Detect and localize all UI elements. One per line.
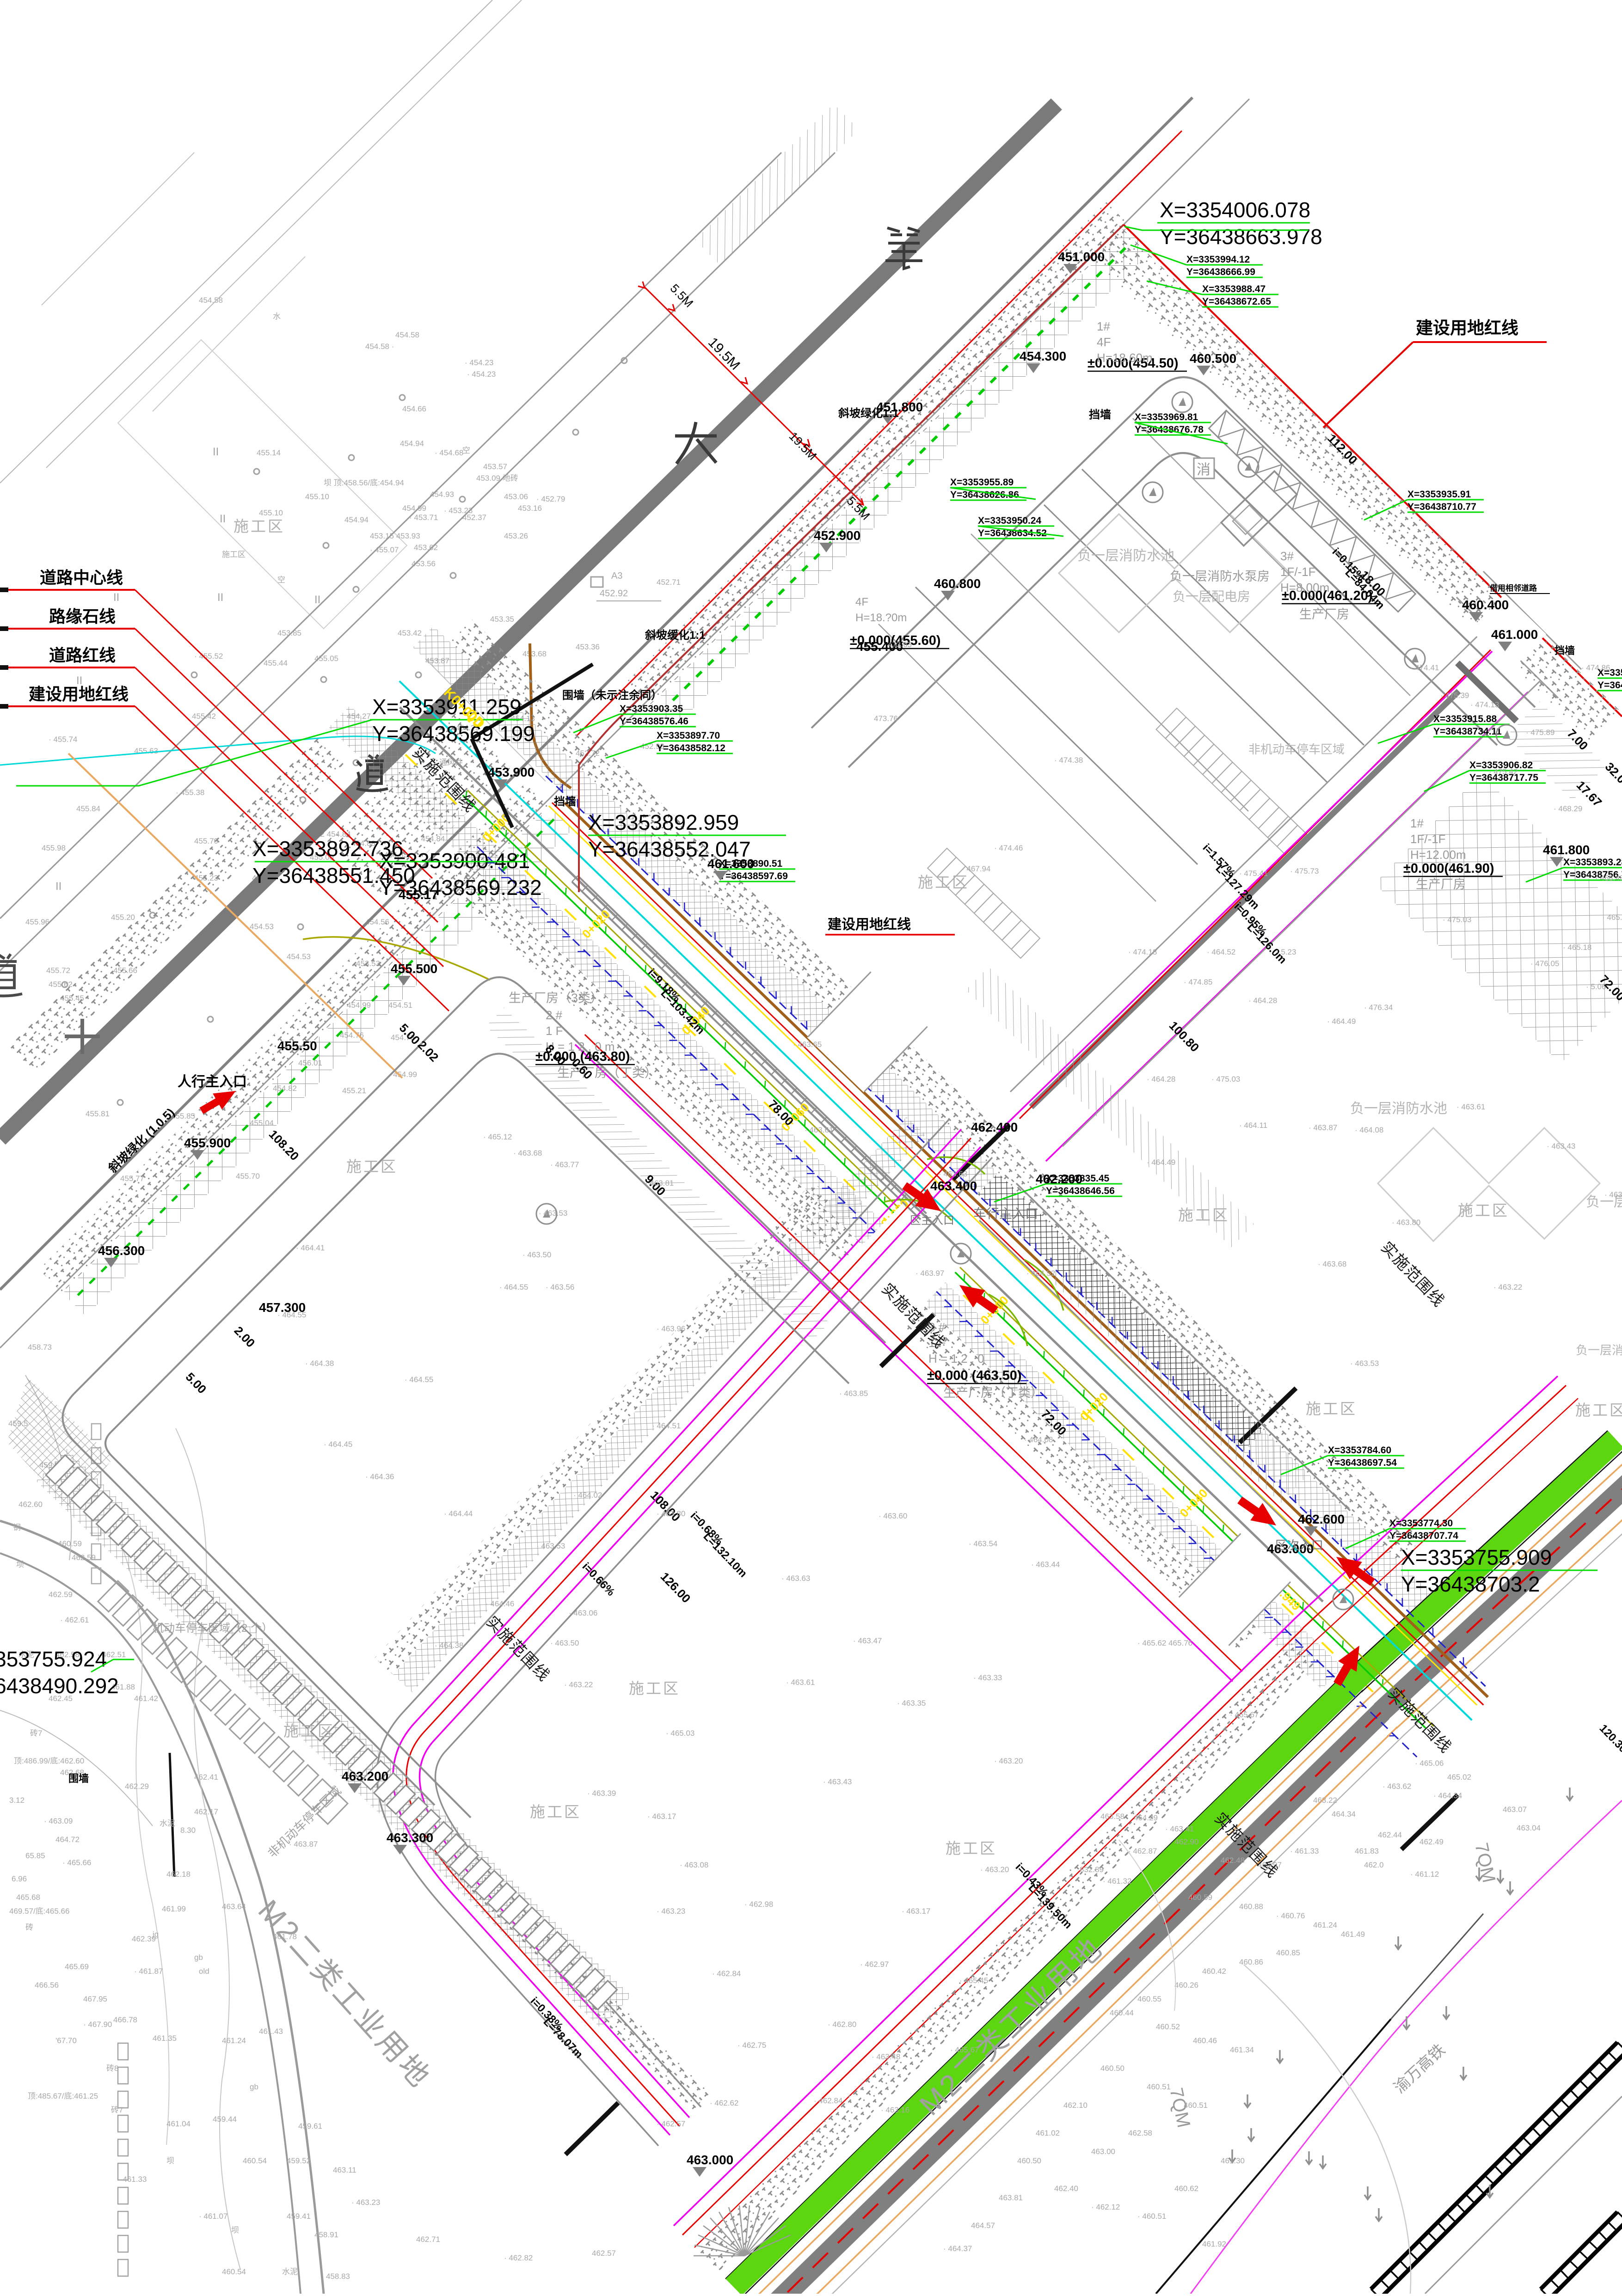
svg-text:gb: gb	[250, 2082, 258, 2091]
svg-text:坝: 坝	[231, 2226, 239, 2235]
svg-text:453.36: 453.36	[576, 643, 600, 651]
svg-text:· 463.50: · 463.50	[550, 1639, 579, 1647]
svg-text:· 463.96: · 463.96	[657, 1324, 685, 1333]
svg-text:顶:485.67/底:461.25: 顶:485.67/底:461.25	[28, 2092, 98, 2100]
svg-text:455.900: 455.900	[184, 1136, 231, 1150]
svg-text:负一层消防水池: 负一层消防水池	[1077, 548, 1174, 563]
svg-text:456.300: 456.300	[98, 1243, 145, 1258]
svg-text:· 5.06: · 5.06	[1586, 982, 1606, 991]
svg-text:· 465.67: · 465.67	[950, 2045, 979, 2054]
svg-text:X=3353784.60: X=3353784.60	[1328, 1445, 1391, 1456]
svg-text:· 463.2: · 463.2	[1604, 1190, 1622, 1199]
svg-text:· 464.34: · 464.34	[1433, 1791, 1462, 1800]
svg-text:道路中心线: 道路中心线	[40, 568, 123, 587]
svg-text:· 463.68: · 463.68	[1318, 1260, 1346, 1268]
svg-text:X=3353969.81: X=3353969.81	[1135, 412, 1198, 422]
svg-text:· 462.87: · 462.87	[1128, 1847, 1157, 1855]
svg-text:· 463.61: · 463.61	[805, 1126, 833, 1134]
svg-text:· 462.90: · 462.90	[1170, 1837, 1198, 1846]
svg-text:3#: 3#	[1280, 549, 1294, 563]
svg-text:生产厂房: 生产厂房	[1299, 607, 1349, 621]
svg-text:· 462.84: · 462.84	[712, 1969, 741, 1978]
svg-text:· 463.33: · 463.33	[973, 1673, 1002, 1682]
svg-text:460.54: 460.54	[222, 2267, 246, 2276]
svg-text:· 474.85: · 474.85	[1184, 978, 1212, 986]
svg-text:4F: 4F	[1097, 335, 1111, 349]
svg-text:· 461.33: · 461.33	[118, 2175, 147, 2184]
svg-text:455.20: 455.20	[111, 913, 135, 922]
svg-text:· 463.61: · 463.61	[786, 1678, 815, 1687]
svg-text:· 460.51: · 460.51	[1137, 2212, 1166, 2221]
svg-text:460.50: 460.50	[1100, 2064, 1124, 2073]
svg-text:· 467.94: · 467.94	[962, 864, 990, 873]
svg-text:463.58: 463.58	[1100, 1812, 1124, 1821]
svg-text:465.02: 465.02	[1447, 1773, 1471, 1782]
svg-text:Y=36438666.99: Y=36438666.99	[1186, 267, 1255, 277]
svg-text:· 463.17: · 463.17	[647, 1812, 676, 1821]
svg-text:· 463.44: · 463.44	[1031, 1560, 1060, 1569]
svg-text:Y=36438597.69: Y=36438597.69	[719, 871, 788, 882]
svg-text:462.29: 462.29	[125, 1782, 149, 1791]
svg-text:· 464.38: · 464.38	[305, 1359, 334, 1368]
svg-text:455.44: 455.44	[264, 659, 288, 667]
svg-text:454.66: 454.66	[402, 404, 426, 413]
svg-text:施工区: 施工区	[346, 1158, 398, 1175]
svg-text:453.35: 453.35	[490, 615, 514, 624]
svg-text:生产厂房（丁类）: 生产厂房（丁类）	[943, 1386, 1043, 1400]
svg-text:460.62: 460.62	[1174, 2184, 1198, 2193]
svg-text:464.72: 464.72	[55, 1835, 80, 1844]
svg-text:473.76: 473.76	[874, 714, 898, 723]
svg-text:· 463.81: · 463.81	[645, 1179, 674, 1188]
svg-text:· 463.53: · 463.53	[1350, 1359, 1379, 1368]
svg-text:空: 空	[277, 576, 285, 584]
svg-text:· 465.06: · 465.06	[1415, 1759, 1444, 1768]
svg-text:II: II	[55, 880, 61, 893]
svg-text:460.26: 460.26	[1174, 1981, 1198, 1990]
svg-text:施工区: 施工区	[1306, 1400, 1357, 1417]
svg-text:· 468.29: · 468.29	[1554, 804, 1582, 813]
svg-text:469.57/底:465.66: 469.57/底:465.66	[9, 1907, 69, 1916]
svg-text:X=3353774.30: X=3353774.30	[1389, 1518, 1453, 1529]
svg-text:· 464.36: · 464.36	[365, 1472, 394, 1481]
svg-text:X=3353900.481: X=3353900.481	[379, 849, 530, 873]
svg-text:砖7: 砖7	[111, 2106, 123, 2114]
svg-text:· 476.05: · 476.05	[1530, 959, 1559, 968]
svg-text:461.30: 461.30	[1221, 2156, 1245, 2165]
svg-text:水泥: 水泥	[160, 1819, 175, 1828]
svg-text:460.44: 460.44	[1110, 2008, 1134, 2017]
svg-text:挡墙: 挡墙	[554, 795, 576, 808]
svg-text:施工区: 施工区	[629, 1680, 680, 1697]
svg-text:H=8.00m: H=8.00m	[1280, 581, 1329, 594]
svg-text:463.300: 463.300	[387, 1831, 433, 1845]
svg-text:462.200: 462.200	[1036, 1172, 1082, 1186]
svg-text:· 463.60: · 463.60	[879, 1512, 907, 1520]
svg-text:1 F: 1 F	[546, 1024, 563, 1038]
svg-text:施工区: 施工区	[233, 518, 285, 535]
svg-text:Y=36438569.199: Y=36438569.199	[372, 722, 535, 746]
svg-text:453.09 地砖: 453.09 地砖	[476, 474, 518, 483]
svg-text:461.92: 461.92	[1202, 2240, 1226, 2248]
svg-text:施工区: 施工区	[918, 874, 969, 891]
svg-text:Y=36438697.54: Y=36438697.54	[1328, 1457, 1397, 1468]
svg-text:· 5.23: · 5.23	[1276, 948, 1296, 956]
svg-text:顶:486.99/底:462.60: 顶:486.99/底:462.60	[14, 1757, 84, 1765]
svg-text:463.200: 463.200	[342, 1769, 388, 1783]
svg-text:455.14: 455.14	[257, 448, 281, 457]
svg-text:· 475.03: · 475.03	[1443, 915, 1471, 924]
svg-text:· 464.08: · 464.08	[1024, 1435, 1053, 1444]
svg-text:· 474.86: · 474.86	[1581, 663, 1610, 672]
svg-text:1#: 1#	[1410, 816, 1424, 830]
svg-text:· 463.97: · 463.97	[915, 1269, 944, 1278]
svg-text:462.10: 462.10	[1063, 2101, 1087, 2110]
svg-text:462.600: 462.600	[1298, 1512, 1345, 1526]
svg-text:454.99: 454.99	[402, 504, 426, 513]
svg-text:建设用地红线: 建设用地红线	[828, 917, 911, 932]
svg-text:· 461.33: · 461.33	[1290, 1847, 1319, 1855]
svg-text:455.500: 455.500	[391, 961, 437, 976]
svg-text:· 463.20: · 463.20	[994, 1757, 1023, 1765]
svg-text:461.99: 461.99	[162, 1904, 186, 1913]
svg-text:454.58 ·: 454.58 ·	[365, 342, 394, 351]
svg-text:X=3353897.70: X=3353897.70	[657, 730, 720, 741]
svg-text:461.24: 461.24	[222, 2036, 246, 2045]
svg-text:路缘石线: 路缘石线	[49, 607, 116, 626]
svg-text:X=3353892.959: X=3353892.959	[588, 810, 739, 834]
svg-text:1F/-1F: 1F/-1F	[1410, 832, 1446, 846]
svg-text:455.70: 455.70	[236, 1172, 260, 1181]
svg-text:· 475.03: · 475.03	[1211, 1075, 1240, 1084]
svg-text:461.800: 461.800	[1543, 843, 1590, 857]
svg-text:· 464.55: · 464.55	[499, 1283, 528, 1292]
svg-text:462.44: 462.44	[1378, 1831, 1402, 1839]
svg-text:施工区: 施工区	[1458, 1202, 1509, 1219]
svg-text:· 463.43: · 463.43	[823, 1777, 852, 1786]
svg-text:462.60: 462.60	[18, 1500, 43, 1509]
svg-text:455.81: 455.81	[86, 1109, 110, 1118]
svg-text:Y=36438576.46: Y=36438576.46	[620, 716, 688, 727]
svg-text:挡墙: 挡墙	[1554, 645, 1575, 656]
svg-text:建设用地红线: 建设用地红线	[1416, 318, 1518, 337]
svg-text:X=3353955.89: X=3353955.89	[950, 477, 1014, 488]
svg-text:区次入口: 区次入口	[1275, 1538, 1323, 1552]
svg-text:old: old	[199, 1967, 209, 1976]
svg-text:462.400: 462.400	[971, 1120, 1018, 1134]
svg-text:· 462.82: · 462.82	[504, 2253, 533, 2262]
svg-text:463.00: 463.00	[1091, 2147, 1115, 2156]
svg-text:· 465.66: · 465.66	[62, 1858, 91, 1867]
svg-text:· 463.53: · 463.53	[539, 1209, 567, 1218]
svg-text:· 461.07: · 461.07	[199, 2212, 227, 2221]
svg-text:· 463.41: · 463.41	[1165, 1825, 1194, 1833]
svg-text:461.24: 461.24	[1313, 1921, 1337, 1929]
svg-text:464.29: 464.29	[1134, 1813, 1158, 1822]
svg-text:453.26: 453.26	[504, 532, 528, 540]
svg-text:Y=36438582.12: Y=36438582.12	[657, 743, 725, 753]
svg-text:· 464.51: · 464.51	[652, 1421, 681, 1430]
svg-text:463.400: 463.400	[930, 1179, 977, 1193]
svg-text:· 463.16: · 463.16	[881, 2106, 909, 2114]
svg-text:454.53: 454.53	[287, 952, 311, 961]
svg-text:461.600: 461.600	[707, 857, 754, 871]
svg-text:832.89: 832.89	[1080, 1865, 1104, 1874]
svg-text:· 468.48: · 468.48	[1595, 874, 1622, 882]
svg-text:460.85: 460.85	[1276, 1948, 1300, 1957]
svg-text:· 465.18: · 465.18	[1563, 943, 1591, 952]
svg-text:±0.000 (463.50): ±0.000 (463.50)	[927, 1368, 1022, 1383]
svg-text:4F: 4F	[855, 596, 868, 608]
svg-text:· 463.63: · 463.63	[939, 1169, 967, 1178]
svg-text:466.78: 466.78	[113, 2015, 137, 2024]
svg-text:· 463.17: · 463.17	[902, 1907, 930, 1916]
svg-text:460.59: 460.59	[58, 1539, 82, 1548]
svg-text:X=3353903.35: X=3353903.35	[620, 704, 683, 714]
svg-text:2 #: 2 #	[546, 1008, 563, 1022]
svg-text:· 453.71: · 453.71	[409, 513, 438, 522]
svg-text:· 474.46: · 474.46	[994, 844, 1023, 852]
svg-text:Y=36438663.978: Y=36438663.978	[1160, 225, 1322, 249]
svg-text:· 464.49: · 464.49	[1327, 1017, 1356, 1026]
svg-text:空: 空	[462, 446, 470, 455]
svg-text:460.50: 460.50	[1017, 2156, 1041, 2165]
svg-text:1#: 1#	[1097, 319, 1110, 333]
svg-text:458.91: 458.91	[314, 2230, 338, 2239]
svg-text:II: II	[314, 594, 320, 606]
svg-text:461.35: 461.35	[153, 2034, 177, 2043]
svg-text:· 463.62: · 463.62	[1382, 1782, 1411, 1791]
svg-text:· 455.52: · 455.52	[194, 652, 223, 661]
svg-text:负一层消防水泵房: 负一层消防水泵房	[1170, 569, 1270, 583]
svg-text:H=18.?0m: H=18.?0m	[855, 612, 907, 624]
svg-text:· 464.41: · 464.41	[296, 1243, 325, 1252]
svg-text:· 463.77: · 463.77	[550, 1160, 579, 1169]
svg-text:· 463.09: · 463.09	[44, 1817, 73, 1825]
svg-text:Y=36438710.77: Y=36438710.77	[1407, 502, 1476, 512]
svg-text:462.0: 462.0	[1364, 1861, 1384, 1869]
svg-text:454.94: 454.94	[344, 515, 369, 524]
svg-text:459.41: 459.41	[287, 2212, 311, 2221]
svg-text:463.07: 463.07	[1503, 1805, 1527, 1814]
svg-text:Y=36438676.78: Y=36438676.78	[1135, 424, 1204, 435]
svg-text:负一层消: 负一层消	[1576, 1343, 1622, 1357]
svg-text:II: II	[113, 591, 119, 604]
svg-text:463.11: 463.11	[333, 2166, 356, 2174]
svg-text:· 463.63: · 463.63	[781, 1574, 810, 1583]
svg-text:· 462.61: · 462.61	[60, 1616, 89, 1624]
svg-text:· 465.29: · 465.29	[1602, 913, 1622, 922]
svg-text:· 463.56: · 463.56	[546, 1283, 574, 1292]
svg-text:X=3353994.12: X=3353994.12	[1186, 254, 1250, 265]
svg-text:462.41: 462.41	[194, 1773, 218, 1782]
svg-text:453.68: 453.68	[522, 649, 547, 658]
svg-text:· 475.73: · 475.73	[1290, 867, 1319, 876]
svg-text:· 463.53: · 463.53	[536, 1542, 565, 1550]
svg-text:生产厂房（3类）: 生产厂房（3类）	[509, 991, 603, 1005]
svg-text:461.42: 461.42	[134, 1694, 158, 1703]
svg-text:462.59: 462.59	[49, 1590, 73, 1599]
svg-text:· 463.22: · 463.22	[1493, 1283, 1522, 1292]
svg-text:· 464.49: · 464.49	[1147, 1158, 1175, 1167]
svg-text:467.95: 467.95	[83, 1995, 107, 2003]
svg-text:Y=36438: Y=36438	[1597, 680, 1622, 691]
svg-text:施工区: 施工区	[1178, 1206, 1229, 1224]
svg-text:452.92: 452.92	[600, 588, 628, 599]
svg-text:A3: A3	[611, 571, 622, 581]
svg-text:· 465.03: · 465.03	[666, 1729, 694, 1738]
svg-text:借用相邻道路: 借用相邻道路	[1489, 583, 1537, 593]
svg-text:461.04: 461.04	[166, 2119, 190, 2128]
svg-text:· 465.67: · 465.67	[1230, 1710, 1259, 1719]
svg-text:· 462.97: · 462.97	[860, 1960, 889, 1969]
svg-text:460.42: 460.42	[1202, 1967, 1226, 1976]
svg-text:460.88: 460.88	[1239, 1902, 1263, 1911]
svg-text:453.16: 453.16	[518, 504, 542, 513]
svg-text:X=3353915.88: X=3353915.88	[1433, 714, 1497, 724]
svg-text:gb: gb	[194, 1953, 203, 1962]
svg-text:460.800: 460.800	[934, 576, 981, 591]
svg-text:· 463.35: · 463.35	[897, 1699, 926, 1708]
svg-text:消: 消	[1197, 462, 1210, 478]
svg-text:453.85: 453.85	[277, 629, 301, 637]
svg-text:· 463.54: · 463.54	[969, 1539, 997, 1548]
svg-text:455.10: 455.10	[305, 492, 329, 501]
svg-text:钢: 钢	[13, 1523, 21, 1532]
svg-text:463.04: 463.04	[1517, 1824, 1541, 1832]
svg-text:465.68: 465.68	[16, 1893, 40, 1902]
svg-text:461.02: 461.02	[1036, 2129, 1060, 2137]
svg-text:454.300: 454.300	[1020, 349, 1066, 363]
svg-text:· 464.11: · 464.11	[1239, 1121, 1267, 1130]
svg-text:区主入口: 区主入口	[910, 1214, 954, 1227]
svg-text:X=3354006.078: X=3354006.078	[1160, 198, 1310, 222]
svg-text:· 464.46: · 464.46	[485, 1599, 514, 1608]
svg-text:X=3353988.47: X=3353988.47	[1202, 284, 1266, 294]
svg-text:· 462.62: · 462.62	[710, 2099, 738, 2107]
svg-text:H=18.60m: H=18.60m	[1097, 351, 1153, 365]
svg-text:· 475.41: · 475.41	[1239, 869, 1268, 878]
svg-text:· 455.07: · 455.07	[370, 545, 399, 554]
svg-text:H=12.00m: H=12.00m	[1410, 848, 1466, 862]
svg-text:452.900: 452.900	[814, 528, 860, 543]
svg-text:· 465.12: · 465.12	[483, 1133, 512, 1141]
svg-text:462.71: 462.71	[416, 2235, 440, 2244]
svg-text:· 464.55: · 464.55	[405, 1375, 433, 1384]
svg-text:465.69: 465.69	[65, 1962, 89, 1971]
svg-text:8.30: 8.30	[180, 1826, 196, 1835]
svg-text:453.42: 453.42	[398, 629, 422, 637]
svg-text:· 464.28: · 464.28	[1147, 1075, 1175, 1084]
svg-text:道路红线: 道路红线	[49, 646, 116, 665]
svg-text:454.58: 454.58	[199, 296, 223, 305]
svg-text:451.000: 451.000	[1058, 250, 1105, 264]
svg-text:水: 水	[273, 312, 281, 321]
svg-text:· 464.44: · 464.44	[444, 1509, 473, 1518]
svg-text:· 464.37: · 464.37	[943, 2244, 972, 2253]
svg-text:· 463.22: · 463.22	[564, 1680, 593, 1689]
svg-text:负一层消防水池: 负一层消防水池	[1350, 1101, 1447, 1116]
svg-text:462.58: 462.58	[1128, 2129, 1152, 2137]
svg-text:· 463.80: · 463.80	[1392, 1218, 1420, 1227]
svg-text:· 461.32: · 461.32	[1103, 1877, 1131, 1886]
svg-text:462.48: 462.48	[1221, 1856, 1245, 1865]
svg-text:· 474.18: · 474.18	[1128, 948, 1157, 956]
svg-text:· 452.79: · 452.79	[536, 495, 565, 503]
svg-text:· 463.68: · 463.68	[513, 1149, 542, 1157]
svg-text:460.55: 460.55	[1137, 1995, 1161, 2003]
svg-text:463.000: 463.000	[687, 2153, 733, 2167]
svg-text:车行主入口: 车行主入口	[973, 1206, 1038, 1221]
svg-text:· 474.41: · 474.41	[1410, 663, 1439, 672]
svg-text:Y=36438490.292: Y=36438490.292	[0, 1674, 119, 1698]
svg-text:· 463.85: · 463.85	[839, 1389, 868, 1398]
svg-text:· 474.13: · 474.13	[1470, 700, 1499, 709]
svg-text:Y=36438646.56: Y=36438646.56	[1046, 1186, 1115, 1196]
svg-text:±0.000(461.90): ±0.000(461.90)	[1403, 861, 1494, 876]
svg-text:· 463.39: · 463.39	[587, 1789, 616, 1798]
svg-text:· 463.61: · 463.61	[1456, 1102, 1485, 1111]
svg-text:砖7: 砖7	[30, 1729, 42, 1738]
svg-text:455.10: 455.10	[259, 508, 283, 517]
svg-text:· 475.39: · 475.39	[1440, 691, 1469, 700]
svg-text:· 454.23: · 454.23	[465, 358, 493, 367]
svg-text:· 463.20: · 463.20	[980, 1865, 1009, 1874]
svg-text:459.61: 459.61	[298, 2122, 322, 2131]
svg-text:斜坡缓化1:1: 斜坡缓化1:1	[645, 629, 706, 642]
svg-text:466.56: 466.56	[35, 1981, 59, 1990]
svg-text:· 462.57: · 462.57	[657, 2119, 685, 2128]
svg-text:458.73: 458.73	[28, 1343, 52, 1352]
svg-text:461.49: 461.49	[1341, 1930, 1365, 1939]
svg-text:砖: 砖	[25, 1923, 33, 1932]
svg-text:· 463.08: · 463.08	[680, 1861, 708, 1869]
svg-text:X=3353755.924: X=3353755.924	[0, 1647, 107, 1671]
svg-text:Y=36438707.74: Y=36438707.74	[1389, 1531, 1458, 1541]
svg-text:· 464.02: · 464.02	[573, 1491, 602, 1500]
svg-text:· 464.28: · 464.28	[1248, 996, 1277, 1005]
svg-text:452.71: 452.71	[657, 578, 681, 587]
svg-text:机动车停车区域（2 个）: 机动车停车区域（2 个）	[153, 1622, 273, 1635]
svg-text:459.44: 459.44	[213, 2115, 237, 2124]
svg-text:460.400: 460.400	[1462, 598, 1509, 612]
svg-text:453.57: 453.57	[483, 462, 507, 471]
svg-text:· 463.50: · 463.50	[522, 1250, 551, 1259]
svg-text:挡墙: 挡墙	[1089, 408, 1111, 421]
svg-text:水泥: 水泥	[282, 2267, 298, 2276]
svg-text:473.63: 473.63	[888, 640, 912, 649]
svg-text:461.000: 461.000	[1491, 627, 1538, 642]
svg-text:463.81: 463.81	[999, 2193, 1023, 2202]
svg-text:· 462.98: · 462.98	[744, 1900, 773, 1909]
svg-text:围墙（未示注余同）: 围墙（未示注余同）	[562, 689, 662, 702]
svg-text:jg: jg	[152, 1930, 159, 1939]
svg-text:460.86: 460.86	[1239, 1958, 1263, 1966]
svg-text:斜坡绿化1:1: 斜坡绿化1:1	[838, 407, 899, 420]
svg-text:454.53: 454.53	[250, 922, 274, 931]
svg-text:生产厂房: 生产厂房	[1416, 877, 1466, 891]
svg-text:H = 1 2 . 0: H = 1 2 . 0	[928, 1352, 984, 1365]
svg-text:坝: 坝	[16, 1560, 24, 1569]
svg-text:453.06: 453.06	[504, 492, 528, 501]
svg-text:455.72: 455.72	[46, 966, 70, 975]
svg-text:· 475.89: · 475.89	[1526, 728, 1554, 737]
svg-text:462.17: 462.17	[194, 1807, 218, 1816]
svg-text:· 474.38: · 474.38	[1054, 756, 1083, 765]
svg-text:· 463.43: · 463.43	[1547, 1142, 1575, 1151]
svg-text:462.59: 462.59	[72, 1553, 96, 1562]
svg-text:461.83: 461.83	[1355, 1847, 1379, 1855]
